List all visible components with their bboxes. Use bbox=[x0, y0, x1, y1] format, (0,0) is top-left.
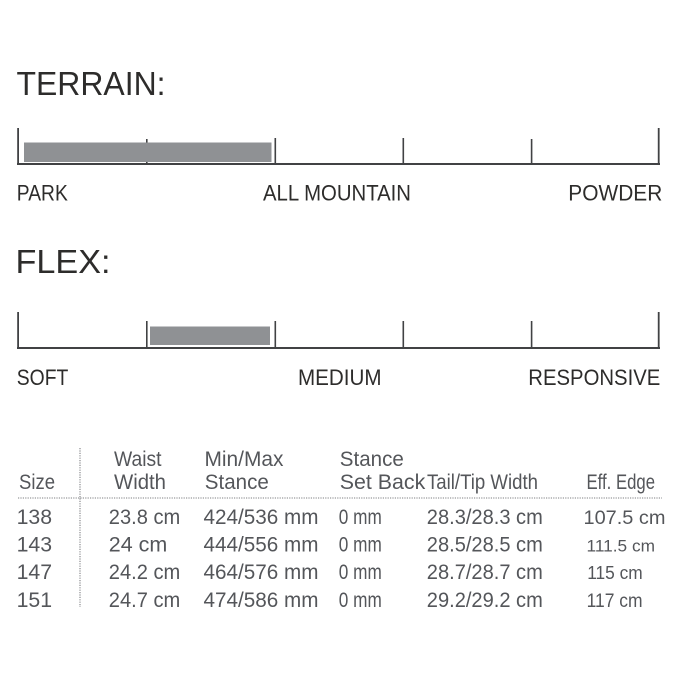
svg-text:TERRAIN:: TERRAIN: bbox=[17, 65, 166, 102]
svg-text:ALL MOUNTAIN: ALL MOUNTAIN bbox=[263, 181, 411, 206]
svg-text:Waist: Waist bbox=[114, 448, 162, 471]
svg-text:Size: Size bbox=[19, 471, 55, 494]
svg-text:0 mm: 0 mm bbox=[339, 561, 382, 584]
svg-text:POWDER: POWDER bbox=[568, 181, 662, 206]
svg-text:143: 143 bbox=[17, 534, 53, 557]
svg-text:Tail/Tip Width: Tail/Tip Width bbox=[427, 471, 538, 494]
svg-text:RESPONSIVE: RESPONSIVE bbox=[528, 365, 660, 390]
svg-text:138: 138 bbox=[17, 506, 53, 529]
svg-text:29.2/29.2 cm: 29.2/29.2 cm bbox=[427, 589, 543, 612]
svg-text:Stance: Stance bbox=[205, 471, 269, 494]
svg-text:474/586 mm: 474/586 mm bbox=[204, 589, 319, 612]
svg-text:151: 151 bbox=[17, 589, 53, 612]
svg-text:147: 147 bbox=[17, 561, 53, 584]
svg-text:Width: Width bbox=[114, 471, 166, 494]
svg-text:28.7/28.7 cm: 28.7/28.7 cm bbox=[427, 561, 543, 584]
svg-text:Min/Max: Min/Max bbox=[205, 448, 284, 471]
svg-text:464/576 mm: 464/576 mm bbox=[204, 561, 319, 584]
svg-text:0 mm: 0 mm bbox=[339, 534, 382, 557]
svg-text:0 mm: 0 mm bbox=[339, 506, 382, 529]
svg-text:Set Back: Set Back bbox=[340, 471, 426, 494]
svg-text:28.5/28.5 cm: 28.5/28.5 cm bbox=[427, 534, 543, 557]
svg-text:PARK: PARK bbox=[17, 181, 68, 206]
svg-text:117 cm: 117 cm bbox=[587, 591, 643, 612]
svg-text:107.5 cm: 107.5 cm bbox=[584, 507, 666, 529]
svg-text:28.3/28.3 cm: 28.3/28.3 cm bbox=[427, 506, 543, 529]
svg-text:MEDIUM: MEDIUM bbox=[298, 365, 382, 390]
svg-text:115 cm: 115 cm bbox=[587, 562, 643, 583]
svg-text:24.7 cm: 24.7 cm bbox=[109, 589, 181, 612]
svg-text:111.5 cm: 111.5 cm bbox=[587, 538, 656, 556]
svg-text:24 cm: 24 cm bbox=[109, 534, 168, 557]
svg-text:0 mm: 0 mm bbox=[339, 589, 382, 612]
svg-text:Stance: Stance bbox=[340, 448, 404, 471]
svg-text:SOFT: SOFT bbox=[17, 365, 69, 390]
svg-text:424/536 mm: 424/536 mm bbox=[204, 506, 319, 529]
svg-text:24.2 cm: 24.2 cm bbox=[109, 561, 181, 584]
svg-text:FLEX:: FLEX: bbox=[16, 243, 111, 280]
svg-text:Eff. Edge: Eff. Edge bbox=[587, 471, 656, 494]
svg-text:23.8 cm: 23.8 cm bbox=[109, 506, 181, 529]
svg-text:444/556 mm: 444/556 mm bbox=[204, 534, 319, 557]
